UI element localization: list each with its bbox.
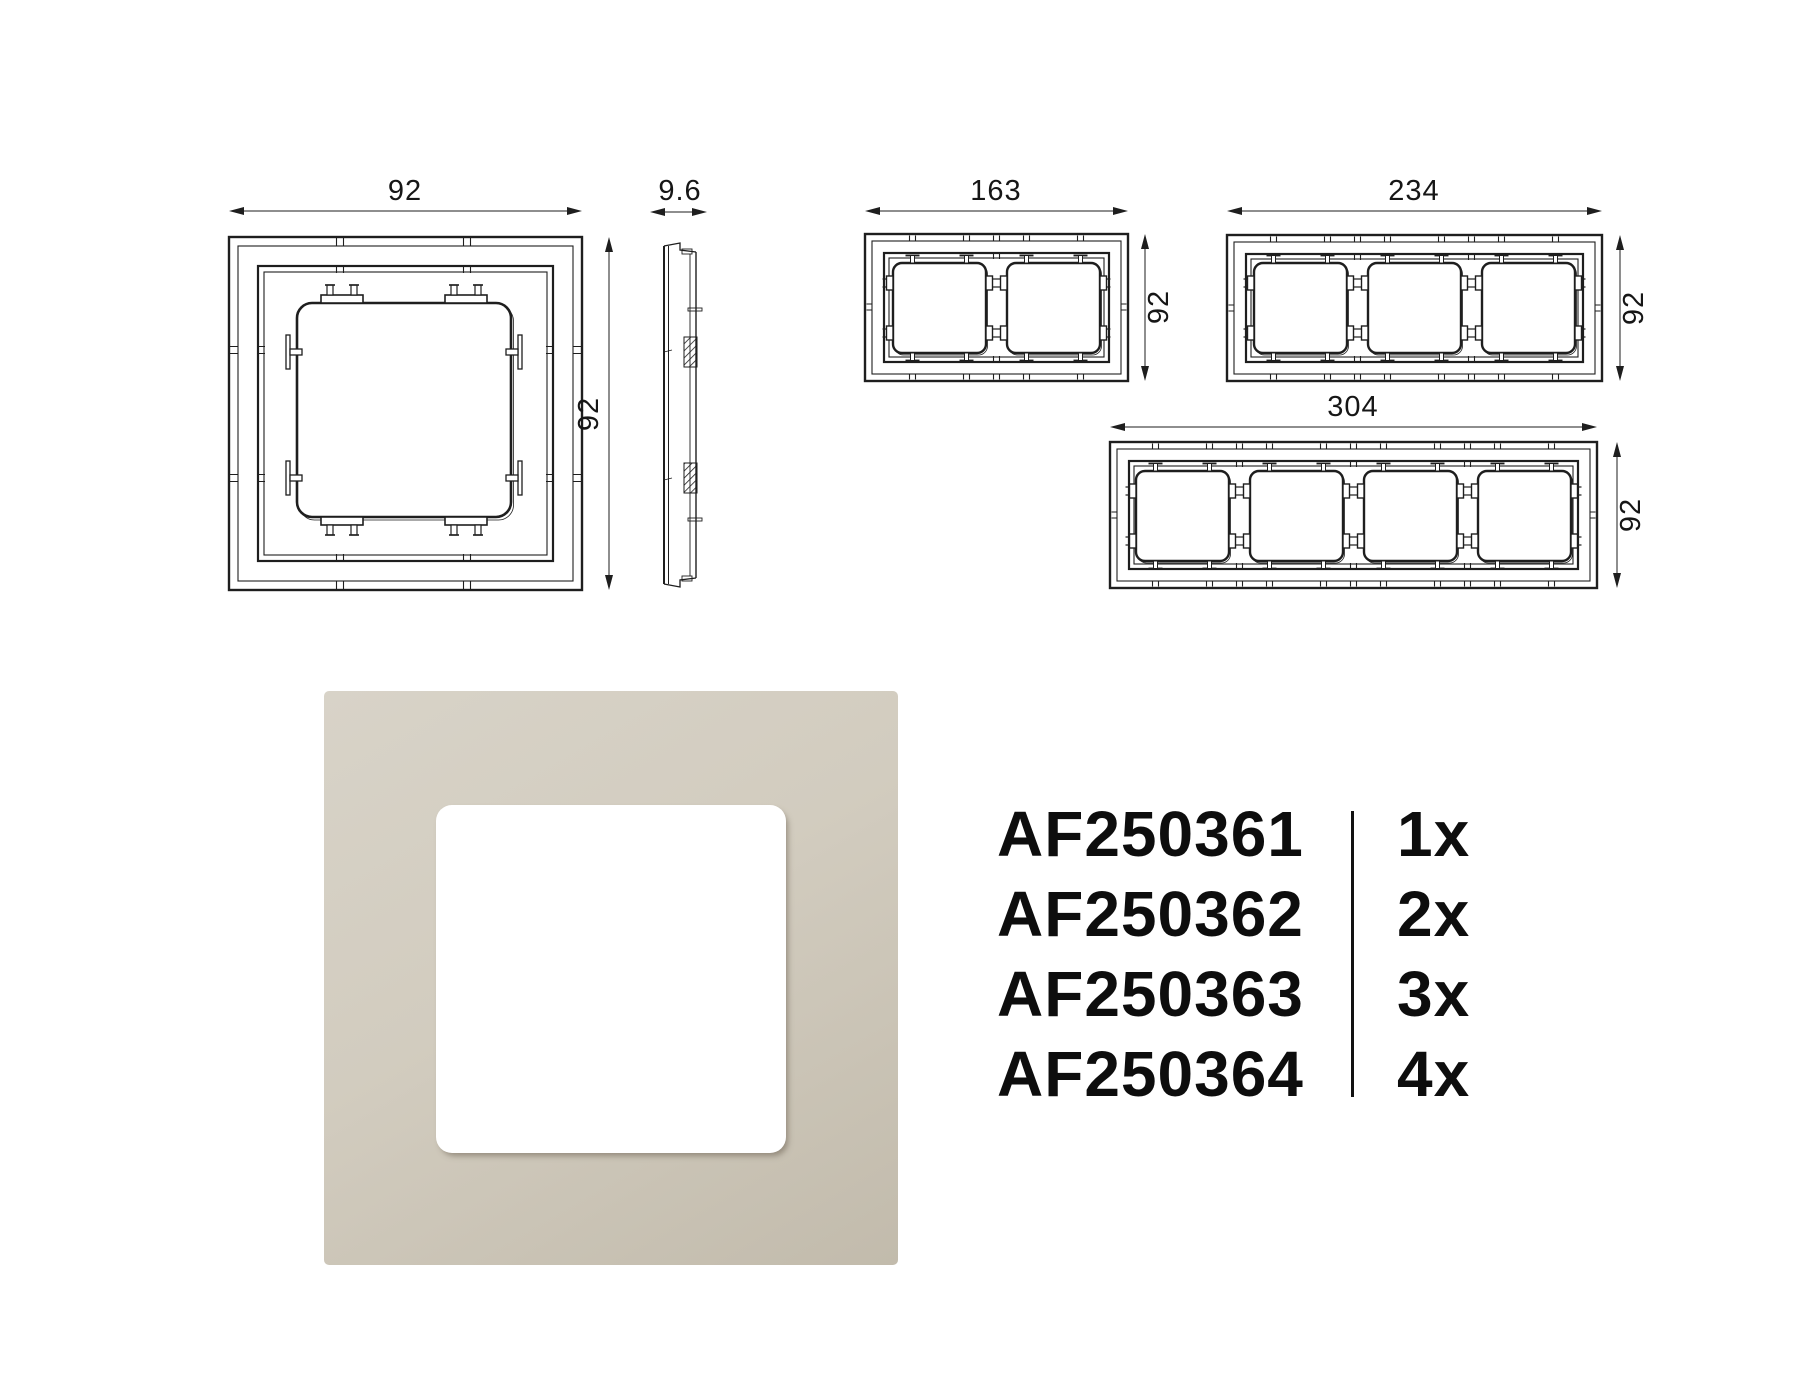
qty-label: 4x: [1397, 1037, 1470, 1111]
product-list: AF250361 1x AF250362 2x AF250363 3x AF25…: [997, 794, 1470, 1114]
dim-side-depth: 9.6: [658, 175, 701, 207]
list-divider: [1351, 811, 1354, 1097]
quad-frame-drawing: [1110, 442, 1597, 588]
sku-label: AF250364: [997, 1037, 1397, 1111]
dim-triple-height: 92: [1618, 291, 1650, 325]
triple-frame-drawing: [1227, 235, 1602, 381]
sku-label: AF250363: [997, 957, 1397, 1031]
dim-double-height: 92: [1143, 290, 1175, 324]
dim-double-width: 163: [970, 175, 1021, 207]
qty-label: 2x: [1397, 877, 1470, 951]
dim-triple-width: 234: [1388, 175, 1439, 207]
product-photo: [324, 691, 898, 1265]
sku-label: AF250361: [997, 797, 1397, 871]
list-item: AF250362 2x: [997, 874, 1470, 954]
qty-label: 1x: [1397, 797, 1470, 871]
product-datasheet: 92 92 9.6 163 92 234: [0, 0, 1800, 1400]
double-frame-drawing: [865, 234, 1128, 381]
single-frame-drawing: [229, 237, 582, 590]
list-item: AF250363 3x: [997, 954, 1470, 1034]
photo-inner-cutout: [436, 805, 786, 1153]
technical-drawings: 92 92 9.6 163 92 234: [0, 0, 1800, 660]
sku-label: AF250362: [997, 877, 1397, 951]
dim-quad-width: 304: [1327, 391, 1378, 423]
list-item: AF250364 4x: [997, 1034, 1470, 1114]
list-item: AF250361 1x: [997, 794, 1470, 874]
dim-single-height: 92: [573, 397, 605, 431]
qty-label: 3x: [1397, 957, 1470, 1031]
dim-quad-height: 92: [1615, 498, 1647, 532]
dim-single-width: 92: [388, 175, 422, 207]
side-profile-drawing: [664, 243, 702, 587]
